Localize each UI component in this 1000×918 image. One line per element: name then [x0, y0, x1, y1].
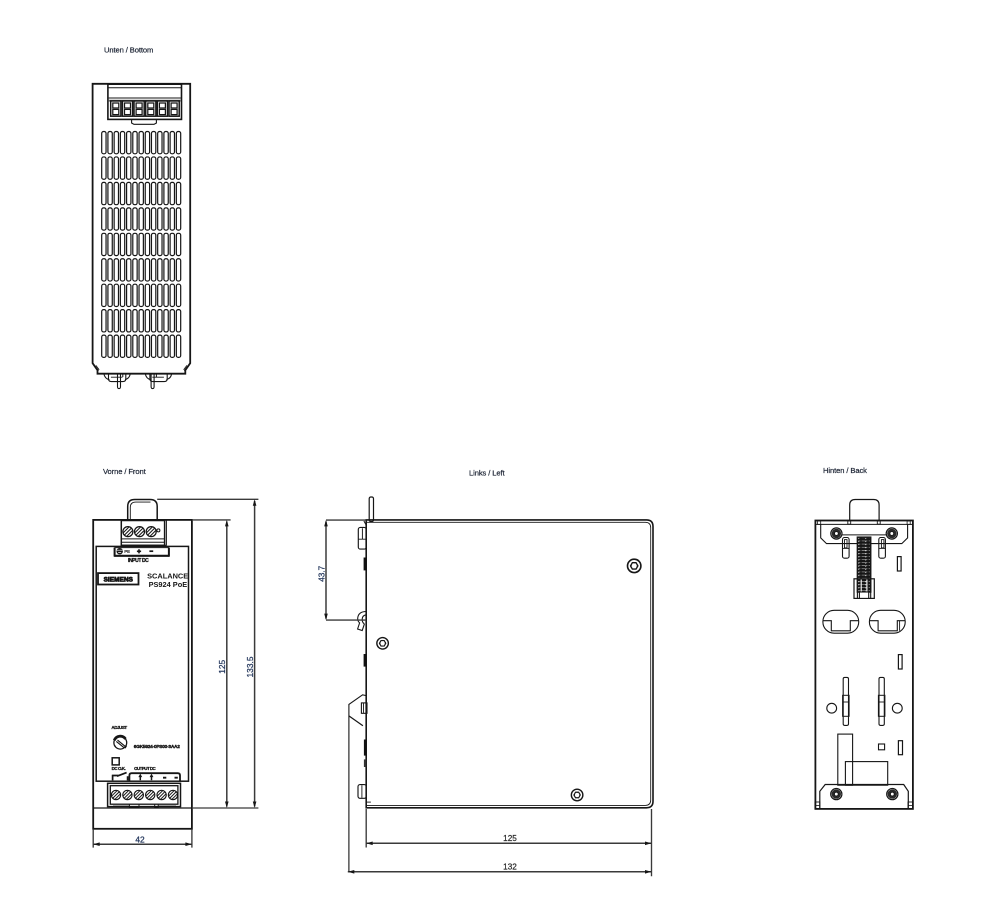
svg-text:125: 125 — [503, 834, 517, 843]
svg-text:6GK5924-0PS00-3AA2: 6GK5924-0PS00-3AA2 — [134, 744, 180, 750]
svg-text:43.7: 43.7 — [317, 565, 326, 581]
svg-text:Links / Left: Links / Left — [469, 469, 506, 478]
svg-text:DC O.K.: DC O.K. — [112, 766, 126, 771]
svg-text:Hinten / Back: Hinten / Back — [823, 466, 867, 475]
svg-text:Vorne / Front: Vorne / Front — [103, 467, 147, 476]
svg-text:42: 42 — [135, 835, 145, 845]
svg-text:OUTPUT DC: OUTPUT DC — [134, 766, 156, 771]
svg-text:125: 125 — [217, 659, 227, 673]
svg-text:PE: PE — [124, 549, 130, 554]
svg-text:Unten / Bottom: Unten / Bottom — [104, 46, 153, 55]
svg-text:PS924 PoE: PS924 PoE — [149, 580, 188, 589]
svg-text:133.5: 133.5 — [245, 656, 255, 677]
svg-text:SIEMENS: SIEMENS — [104, 576, 134, 583]
svg-text:ADJUST: ADJUST — [111, 725, 127, 730]
svg-text:132: 132 — [503, 863, 517, 872]
svg-text:INPUT DC: INPUT DC — [128, 558, 149, 564]
